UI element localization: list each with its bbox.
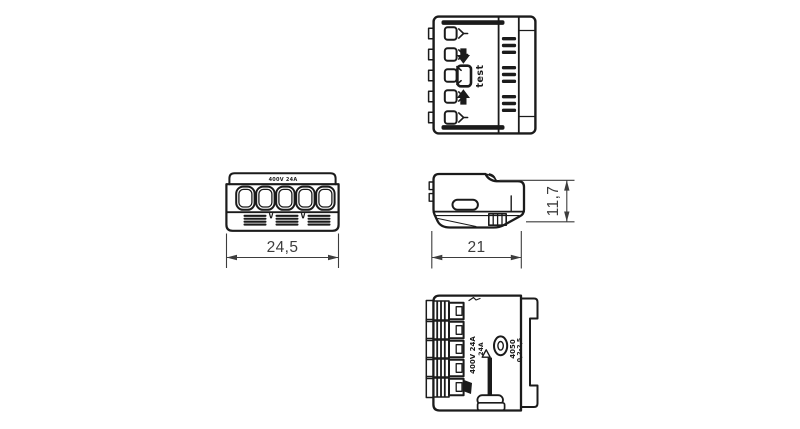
test-label: test [475, 64, 486, 87]
top-view: test [429, 17, 536, 134]
top-edge-bar-upper [442, 20, 505, 25]
dimension-width-label: 24,5 [267, 239, 299, 256]
bottom-edge-tab [478, 403, 505, 410]
front-view: 400V 24A [226, 173, 338, 231]
bottom-view: 400V 24A 24A 4050 0,2-2,5 [426, 296, 537, 411]
arrow-right-icon [511, 255, 522, 260]
arrow-left-icon [432, 255, 443, 260]
side-outline [434, 174, 525, 228]
dimension-width: 24,5 [227, 234, 339, 269]
technical-drawing: 400V 24A [0, 0, 800, 429]
dimension-depth-label: 21 [467, 239, 485, 256]
dimension-depth: 21 [432, 231, 522, 269]
wire-range-marking: 0,2-2,5 [517, 338, 524, 363]
rating-marking: 400V 24A [469, 336, 477, 374]
top-edge-bar-lower [442, 125, 505, 130]
arrow-right-icon [328, 255, 339, 260]
dimension-height-label: 11,7 [545, 186, 562, 217]
arrow-up-icon [564, 180, 569, 190]
front-vent-ribs [244, 215, 331, 226]
arrow-left-icon [227, 255, 238, 260]
screwdriver-slot-icon [488, 358, 492, 396]
side-view [429, 174, 524, 228]
front-marking: 400V 24A [269, 177, 298, 183]
arrow-down-icon [564, 212, 569, 222]
front-wire-openings [236, 187, 334, 210]
